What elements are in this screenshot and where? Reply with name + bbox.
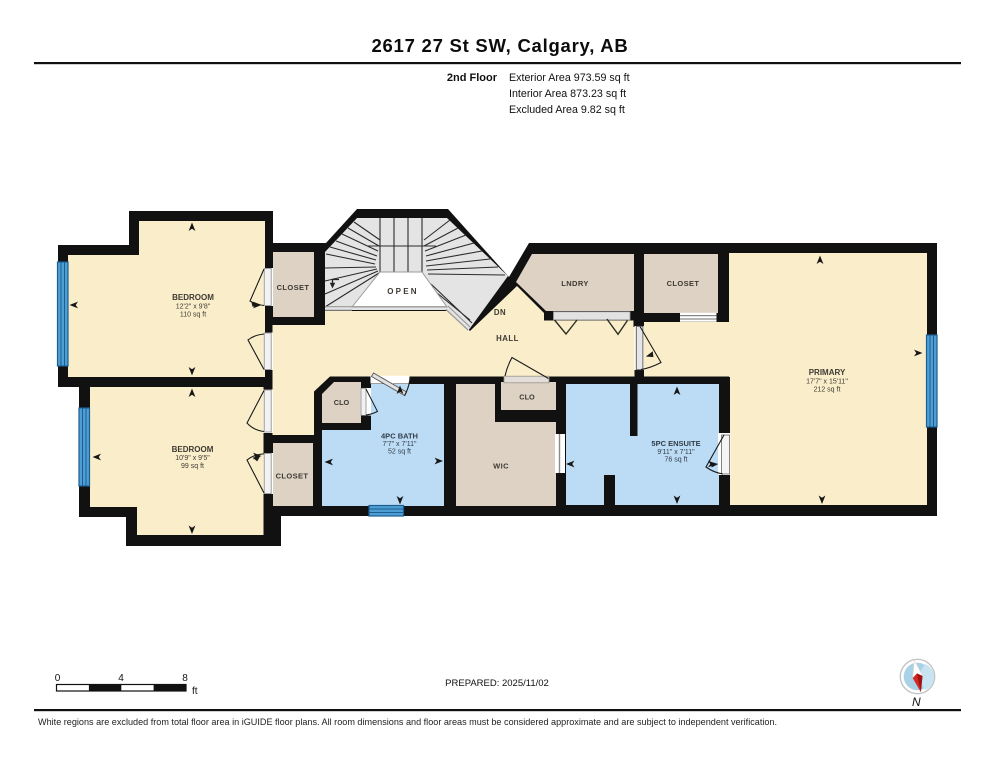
svg-text:0: 0 <box>55 673 61 684</box>
svg-text:CLO: CLO <box>519 393 535 402</box>
svg-text:212 sq ft: 212 sq ft <box>814 386 841 393</box>
svg-text:DN: DN <box>494 308 506 317</box>
svg-text:Interior Area 873.23 sq ft: Interior Area 873.23 sq ft <box>509 88 626 100</box>
svg-text:7'7" x 7'11": 7'7" x 7'11" <box>383 441 417 448</box>
svg-text:Exterior Area 973.59 sq ft: Exterior Area 973.59 sq ft <box>509 72 630 84</box>
svg-text:8: 8 <box>182 673 188 684</box>
svg-text:WIC: WIC <box>493 462 509 471</box>
svg-text:12'2" x 9'8": 12'2" x 9'8" <box>176 303 211 310</box>
svg-text:CLOSET: CLOSET <box>667 279 700 288</box>
svg-text:ft: ft <box>192 686 198 697</box>
svg-text:Excluded Area 9.82 sq ft: Excluded Area 9.82 sq ft <box>509 104 625 116</box>
svg-text:CLO: CLO <box>334 398 350 407</box>
svg-text:BEDROOM: BEDROOM <box>172 445 214 454</box>
svg-text:LNDRY: LNDRY <box>561 279 589 288</box>
svg-text:CLOSET: CLOSET <box>277 283 310 292</box>
svg-text:2617 27 St SW, Calgary, AB: 2617 27 St SW, Calgary, AB <box>371 35 628 56</box>
svg-text:BEDROOM: BEDROOM <box>172 293 214 302</box>
svg-text:110 sq ft: 110 sq ft <box>180 311 206 318</box>
svg-text:2nd Floor: 2nd Floor <box>447 72 498 84</box>
svg-text:76 sq ft: 76 sq ft <box>665 457 688 464</box>
svg-text:17'7" x 15'11": 17'7" x 15'11" <box>806 378 848 385</box>
svg-text:10'9" x 9'5": 10'9" x 9'5" <box>175 455 210 462</box>
svg-text:PRIMARY: PRIMARY <box>809 368 846 377</box>
svg-text:N: N <box>912 695 921 709</box>
svg-text:5PC ENSUITE: 5PC ENSUITE <box>651 439 700 448</box>
svg-text:HALL: HALL <box>496 334 519 343</box>
svg-text:White regions are excluded fro: White regions are excluded from total fl… <box>38 717 777 727</box>
svg-text:99 sq ft: 99 sq ft <box>181 463 204 470</box>
svg-text:PREPARED: 2025/11/02: PREPARED: 2025/11/02 <box>445 678 549 689</box>
svg-text:CLOSET: CLOSET <box>276 472 309 481</box>
svg-text:4PC BATH: 4PC BATH <box>381 432 418 441</box>
svg-text:4: 4 <box>118 673 124 684</box>
svg-text:OPEN: OPEN <box>387 287 418 296</box>
svg-text:9'11" x 7'11": 9'11" x 7'11" <box>657 449 695 456</box>
svg-text:52 sq ft: 52 sq ft <box>388 449 411 456</box>
